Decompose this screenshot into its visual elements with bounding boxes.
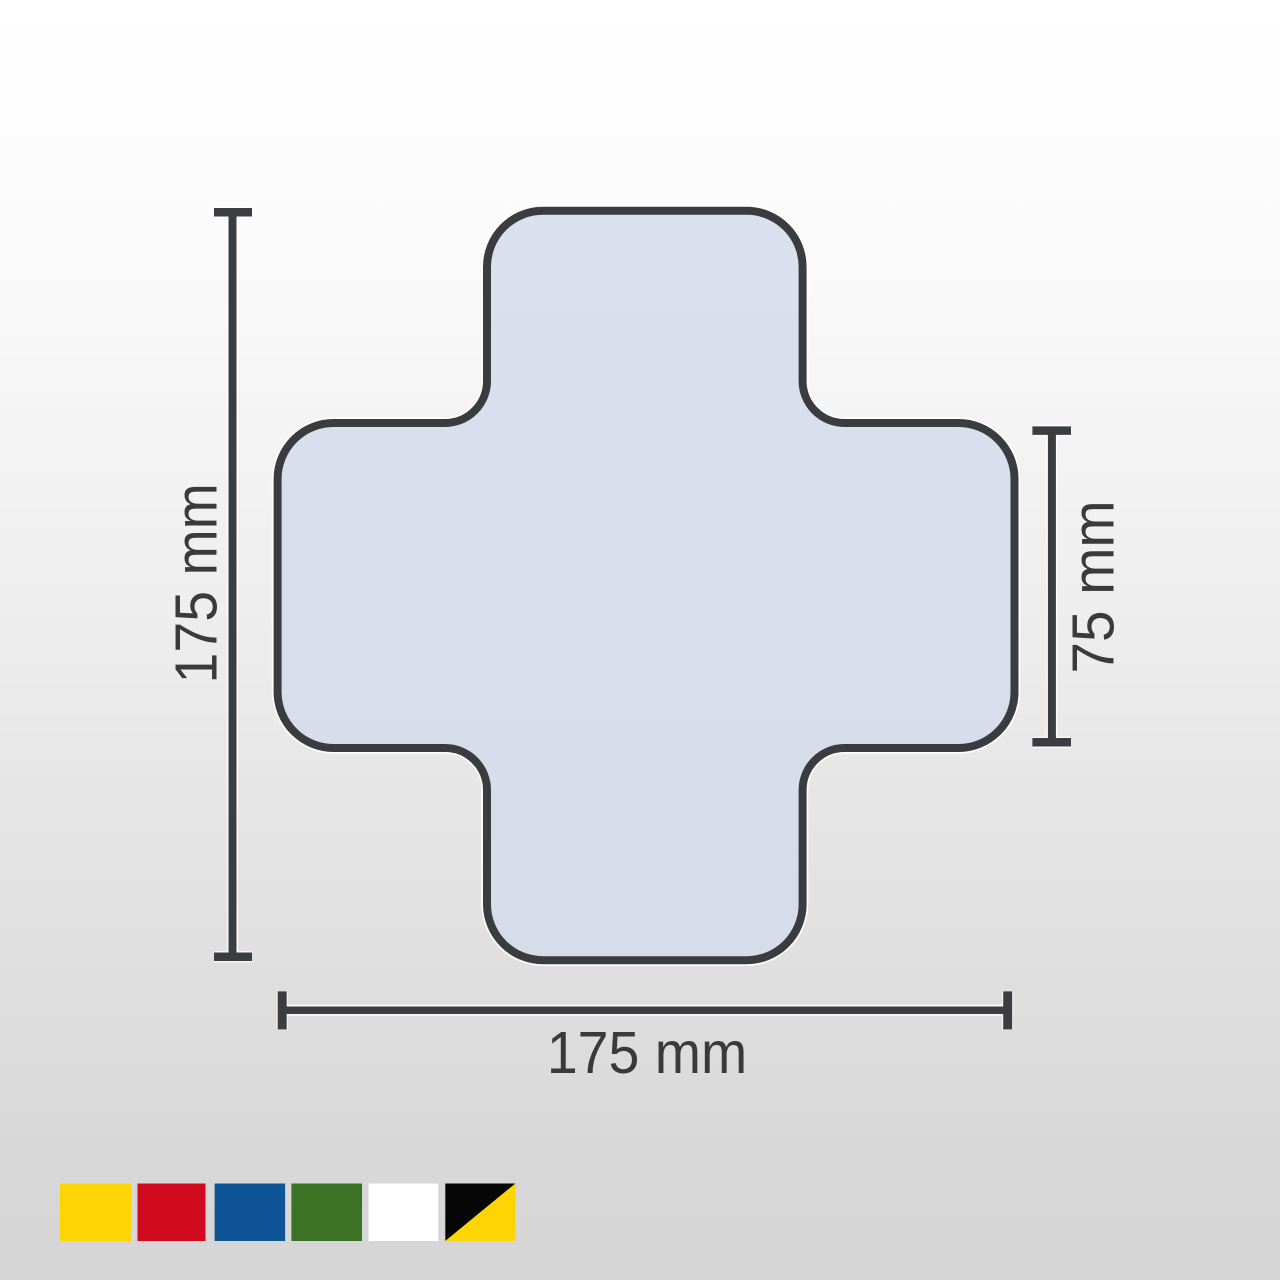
svg-text:175 mm: 175 mm bbox=[547, 1020, 747, 1086]
svg-text:75 mm: 75 mm bbox=[1061, 500, 1126, 673]
svg-text:175 mm: 175 mm bbox=[164, 483, 230, 683]
